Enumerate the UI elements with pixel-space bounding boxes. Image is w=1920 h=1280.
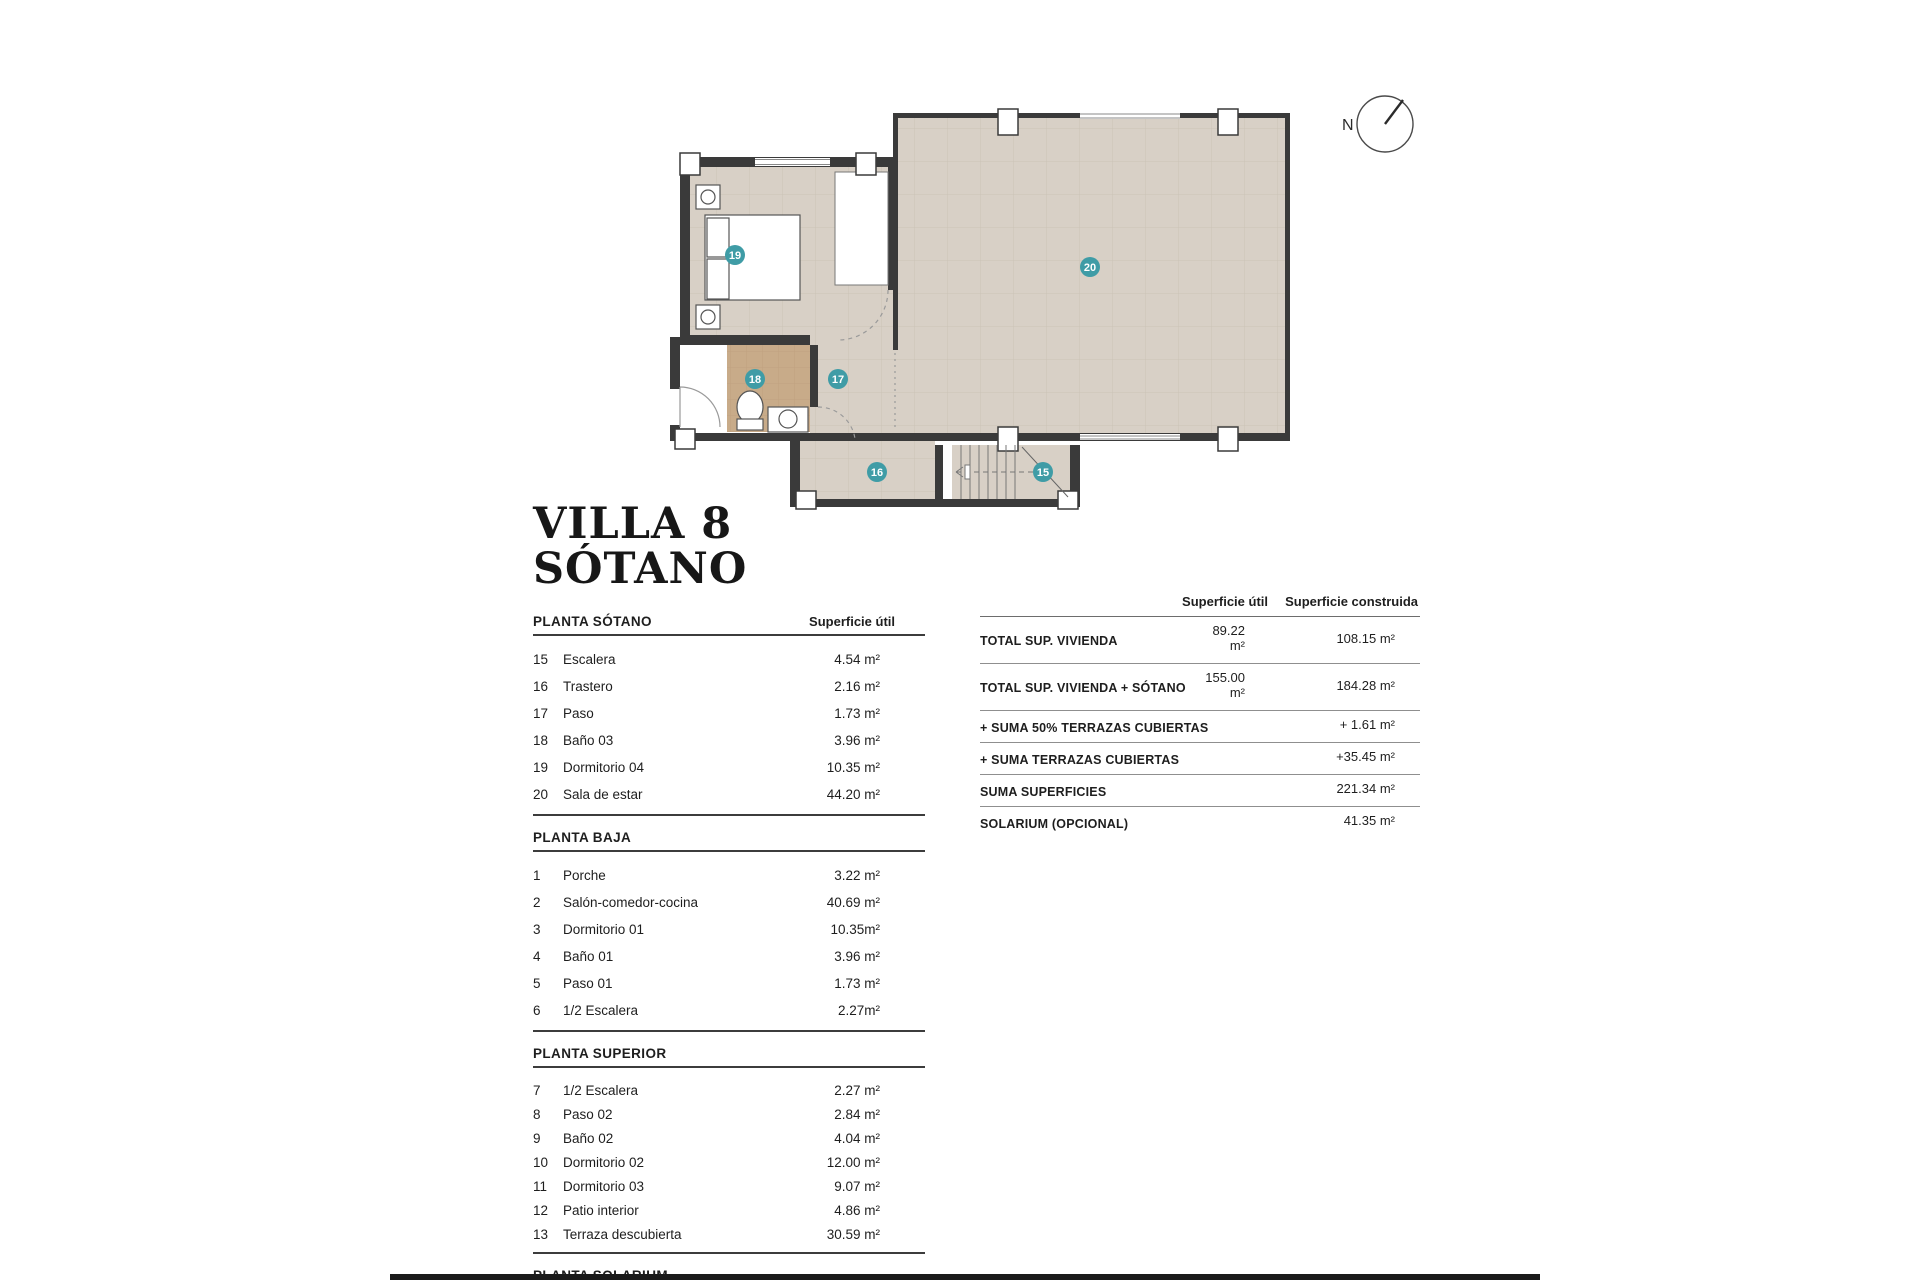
room-number: 13 — [533, 1227, 563, 1242]
badge-18: 18 — [749, 374, 761, 386]
room-name: Patio interior — [563, 1203, 834, 1218]
area-row: 20Sala de estar44.20 m² — [533, 781, 925, 808]
badge-16: 16 — [871, 467, 883, 479]
room-name: Baño 01 — [563, 949, 834, 964]
room-number: 7 — [533, 1083, 563, 1098]
room-number: 10 — [533, 1155, 563, 1170]
area-row: 2Salón-comedor-cocina40.69 m² — [533, 889, 925, 916]
area-row: 17Paso1.73 m² — [533, 700, 925, 727]
room-name: Paso 02 — [563, 1107, 834, 1122]
area-row: 10Dormitorio 0212.00 m² — [533, 1150, 925, 1174]
area-row: 5Paso 011.73 m² — [533, 970, 925, 997]
section-header: PLANTA BAJA — [533, 830, 925, 852]
room-name: Dormitorio 02 — [563, 1155, 827, 1170]
badge-19: 19 — [729, 250, 741, 262]
room-area: 12.00 m² — [827, 1155, 925, 1170]
summary-constr-value: 41.35 m² — [1245, 813, 1420, 828]
room-number: 6 — [533, 1003, 563, 1018]
page-title-line1: VILLA 8 — [533, 502, 925, 547]
summary-constr-value: + 1.61 m² — [1245, 717, 1420, 732]
room-name: Trastero — [563, 679, 834, 694]
summary-header: Superficie útil Superficie construida — [980, 594, 1420, 617]
room-number: 12 — [533, 1203, 563, 1218]
room-name: Baño 03 — [563, 733, 834, 748]
area-row: 12Patio interior4.86 m² — [533, 1198, 925, 1222]
floor-plan: 19 18 17 20 16 15 — [650, 95, 1330, 525]
room-number: 20 — [533, 787, 563, 802]
summary-row: SUMA SUPERFICIES221.34 m² — [980, 775, 1420, 807]
compass-needle — [1385, 100, 1403, 124]
summary-col1-header: Superficie útil — [1182, 594, 1268, 609]
summary-label: SUMA SUPERFICIES — [980, 785, 1200, 799]
room-number: 8 — [533, 1107, 563, 1122]
summary-row: + SUMA 50% TERRAZAS CUBIERTAS+ 1.61 m² — [980, 711, 1420, 743]
room-area: 10.35 m² — [827, 760, 925, 775]
room-area: 2.27m² — [838, 1003, 925, 1018]
room-name: Sala de estar — [563, 787, 827, 802]
room-area: 1.73 m² — [834, 976, 925, 991]
section-title: PLANTA BAJA — [533, 830, 631, 845]
summary-util-value: 89.22 m² — [1200, 623, 1245, 653]
summary-label: TOTAL SUP. VIVIENDA — [980, 634, 1200, 648]
area-row: 18Baño 033.96 m² — [533, 727, 925, 754]
room-area: 4.54 m² — [834, 652, 925, 667]
area-row: 16Trastero2.16 m² — [533, 673, 925, 700]
page: 19 18 17 20 16 15 N VILLA 8 SÓTANO P — [0, 0, 1920, 1280]
room-area: 2.27 m² — [834, 1083, 925, 1098]
footer-bar — [390, 1274, 1540, 1280]
area-table-section: PLANTA SÓTANOSuperficie útil15Escalera4.… — [533, 614, 925, 816]
room-number: 3 — [533, 922, 563, 937]
room-number: 15 — [533, 652, 563, 667]
room-number: 5 — [533, 976, 563, 991]
sink-icon — [768, 407, 808, 432]
room-name: Porche — [563, 868, 834, 883]
north-compass: N — [1330, 68, 1440, 178]
room-number: 4 — [533, 949, 563, 964]
summary-table: Superficie útil Superficie construida TO… — [980, 594, 1420, 838]
area-row: 13Terraza descubierta30.59 m² — [533, 1222, 925, 1246]
room-area: 4.04 m² — [834, 1131, 925, 1146]
section-col-header: Superficie útil — [809, 614, 925, 629]
room-area: 9.07 m² — [834, 1179, 925, 1194]
area-table-section: PLANTA SUPERIOR71/2 Escalera2.27 m²8Paso… — [533, 1046, 925, 1254]
floor-fills — [690, 118, 1285, 499]
room-area: 10.35m² — [830, 922, 925, 937]
summary-util-value: 155.00 m² — [1200, 670, 1245, 700]
summary-constr-value: +35.45 m² — [1245, 749, 1420, 764]
room-area: 30.59 m² — [827, 1227, 925, 1242]
summary-label: + SUMA 50% TERRAZAS CUBIERTAS — [980, 721, 1208, 735]
room-name: Paso — [563, 706, 834, 721]
compass-north-label: N — [1342, 117, 1354, 134]
room-name: Dormitorio 04 — [563, 760, 827, 775]
area-tables: PLANTA SÓTANOSuperficie útil15Escalera4.… — [533, 614, 925, 1280]
area-row: 61/2 Escalera2.27m² — [533, 997, 925, 1024]
summary-row: TOTAL SUP. VIVIENDA89.22 m²108.15 m² — [980, 617, 1420, 664]
room-area: 2.84 m² — [834, 1107, 925, 1122]
area-row: 15Escalera4.54 m² — [533, 646, 925, 673]
badge-15: 15 — [1037, 467, 1049, 479]
room-area: 44.20 m² — [827, 787, 925, 802]
room-area: 2.16 m² — [834, 679, 925, 694]
room-area: 3.96 m² — [834, 733, 925, 748]
closet — [835, 172, 888, 285]
toilet-icon — [737, 391, 763, 430]
left-column: VILLA 8 SÓTANO PLANTA SÓTANOSuperficie ú… — [533, 502, 925, 1280]
summary-row: SOLARIUM (OPCIONAL)41.35 m² — [980, 807, 1420, 838]
area-row: 3Dormitorio 0110.35m² — [533, 916, 925, 943]
area-row: 1Porche3.22 m² — [533, 862, 925, 889]
summary-constr-value: 108.15 m² — [1245, 631, 1420, 646]
bed — [705, 215, 800, 300]
room-number: 2 — [533, 895, 563, 910]
room-name: Escalera — [563, 652, 834, 667]
badge-20: 20 — [1084, 262, 1096, 274]
room-number: 11 — [533, 1179, 563, 1194]
summary-row: TOTAL SUP. VIVIENDA + SÓTANO155.00 m²184… — [980, 664, 1420, 711]
section-header: PLANTA SÓTANOSuperficie útil — [533, 614, 925, 636]
summary-label: + SUMA TERRAZAS CUBIERTAS — [980, 753, 1200, 767]
room-area: 1.73 m² — [834, 706, 925, 721]
room-area: 3.96 m² — [834, 949, 925, 964]
room-number: 17 — [533, 706, 563, 721]
summary-col2-header: Superficie construida — [1268, 594, 1420, 609]
floor-plan-svg: 19 18 17 20 16 15 — [650, 95, 1330, 525]
room-number: 1 — [533, 868, 563, 883]
page-title-line2: SÓTANO — [533, 547, 925, 592]
area-row: 71/2 Escalera2.27 m² — [533, 1078, 925, 1102]
summary-row: + SUMA TERRAZAS CUBIERTAS+35.45 m² — [980, 743, 1420, 775]
area-row: 9Baño 024.04 m² — [533, 1126, 925, 1150]
room-area: 3.22 m² — [834, 868, 925, 883]
summary-label: SOLARIUM (OPCIONAL) — [980, 817, 1200, 831]
room-area: 4.86 m² — [834, 1203, 925, 1218]
room-number: 9 — [533, 1131, 563, 1146]
section-title: PLANTA SUPERIOR — [533, 1046, 667, 1061]
room-name: Paso 01 — [563, 976, 834, 991]
summary-label: TOTAL SUP. VIVIENDA + SÓTANO — [980, 681, 1200, 695]
area-row: 8Paso 022.84 m² — [533, 1102, 925, 1126]
summary-rows: TOTAL SUP. VIVIENDA89.22 m²108.15 m²TOTA… — [980, 617, 1420, 838]
room-number: 18 — [533, 733, 563, 748]
room-name: Salón-comedor-cocina — [563, 895, 827, 910]
room-name: 1/2 Escalera — [563, 1003, 838, 1018]
room-name: Dormitorio 03 — [563, 1179, 834, 1194]
summary-constr-value: 221.34 m² — [1245, 781, 1420, 796]
summary-constr-value: 184.28 m² — [1245, 678, 1420, 693]
section-title: PLANTA SÓTANO — [533, 614, 652, 629]
room-name: Terraza descubierta — [563, 1227, 827, 1242]
area-row: 4Baño 013.96 m² — [533, 943, 925, 970]
room-area: 40.69 m² — [827, 895, 925, 910]
room-number: 19 — [533, 760, 563, 775]
room-name: 1/2 Escalera — [563, 1083, 834, 1098]
area-row: 19Dormitorio 0410.35 m² — [533, 754, 925, 781]
area-table-section: PLANTA BAJA1Porche3.22 m²2Salón-comedor-… — [533, 830, 925, 1032]
room-name: Baño 02 — [563, 1131, 834, 1146]
room-name: Dormitorio 01 — [563, 922, 830, 937]
area-row: 11Dormitorio 039.07 m² — [533, 1174, 925, 1198]
section-header: PLANTA SUPERIOR — [533, 1046, 925, 1068]
room-number: 16 — [533, 679, 563, 694]
badge-17: 17 — [832, 374, 844, 386]
